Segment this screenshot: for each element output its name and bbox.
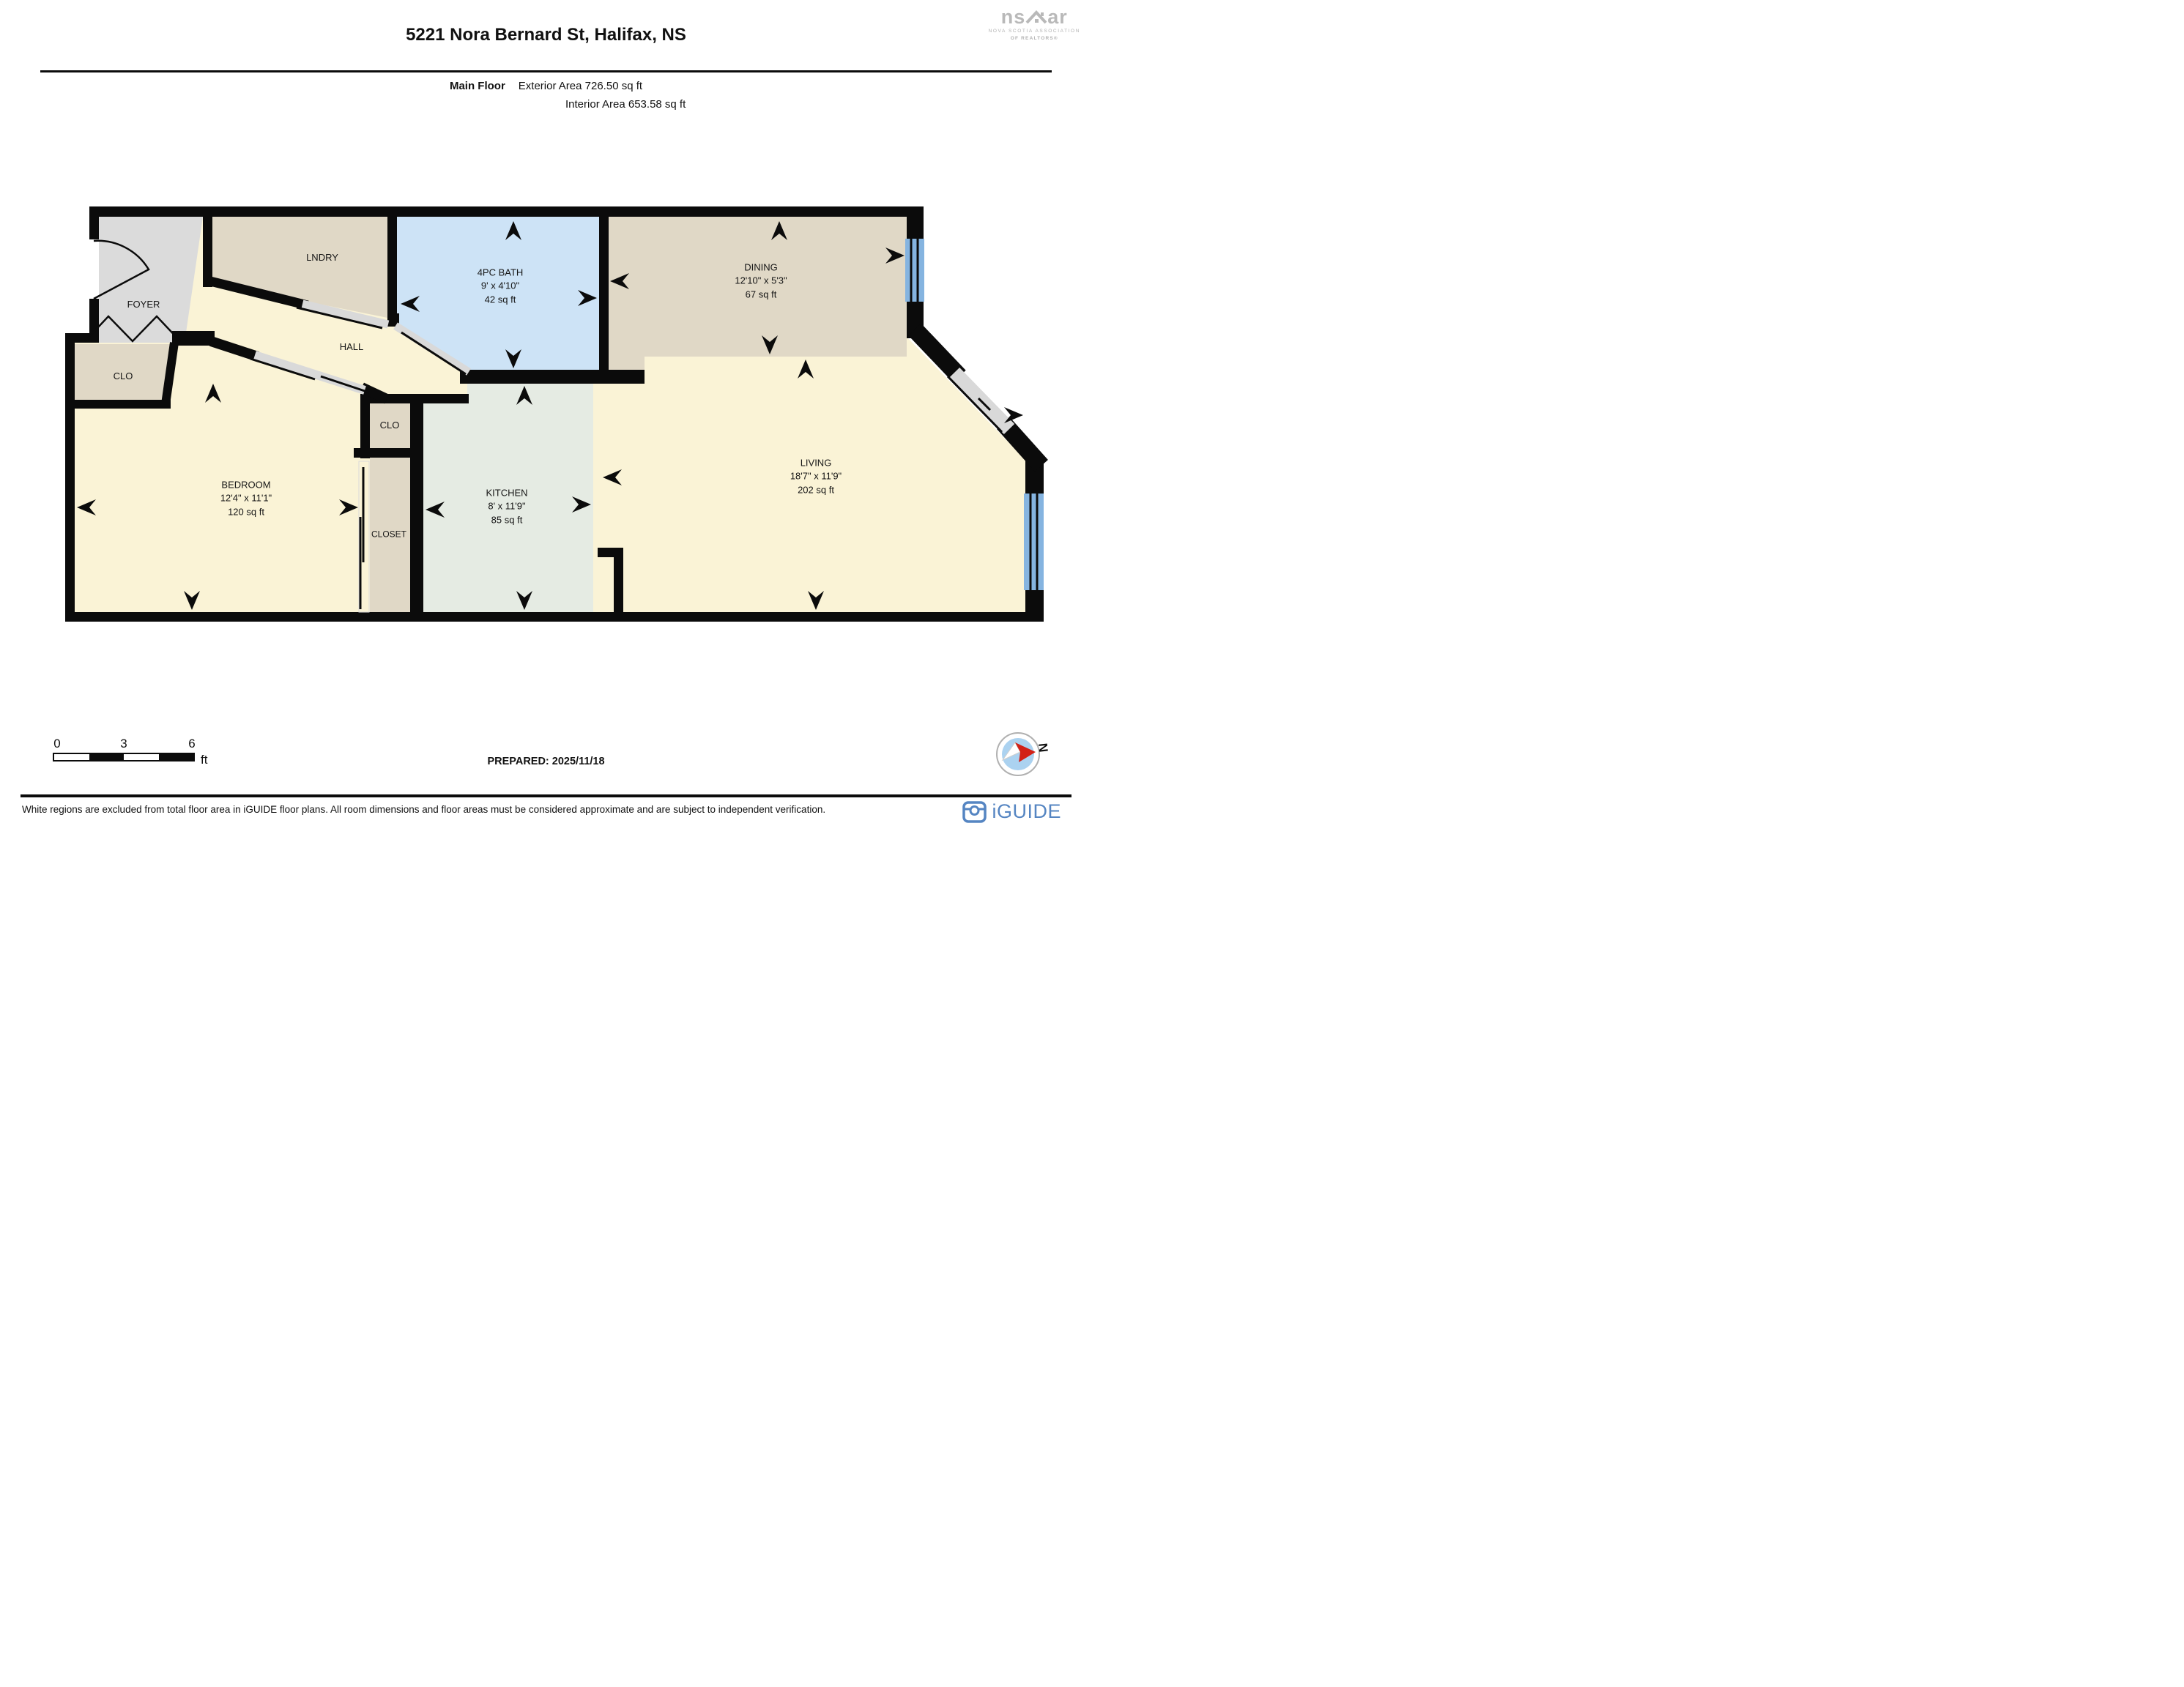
svg-text:N: N [1036,742,1050,753]
room-label-bath: 4PC BATH 9' x 4'10" 42 sq ft [478,266,524,306]
footer-divider [21,794,1071,797]
iguide-logo: iGUIDE [962,799,1061,824]
room-label-laundry: LNDRY [306,251,338,264]
prepared-date: PREPARED: 2025/11/18 [0,756,1092,767]
room-label-bedroom: BEDROOM 12'4" x 11'1" 120 sq ft [220,478,272,518]
room-label-foyer: FOYER [127,298,160,311]
room-label-closet-small: CLO [380,419,400,432]
iguide-camera-icon [962,799,987,824]
room-label-closet-entry: CLO [114,370,133,383]
iguide-wordmark: iGUIDE [992,800,1061,823]
compass-icon: N [995,730,1061,778]
room-label-kitchen: KITCHEN 8' x 11'9" 85 sq ft [486,486,527,526]
scale-label-6: 6 [188,737,195,751]
scale-label-0: 0 [53,737,60,751]
floor-plan [0,0,1092,843]
room-label-living: LIVING 18'7" x 11'9" 202 sq ft [790,456,842,496]
room-label-closet: CLOSET [371,528,406,540]
dining-window [905,239,924,302]
room-label-dining: DINING 12'10" x 5'3" 67 sq ft [735,261,787,301]
room-label-hall: HALL [340,340,364,354]
scale-label-3: 3 [120,737,127,751]
disclaimer-text: White regions are excluded from total fl… [22,804,825,815]
living-window [1024,494,1044,590]
